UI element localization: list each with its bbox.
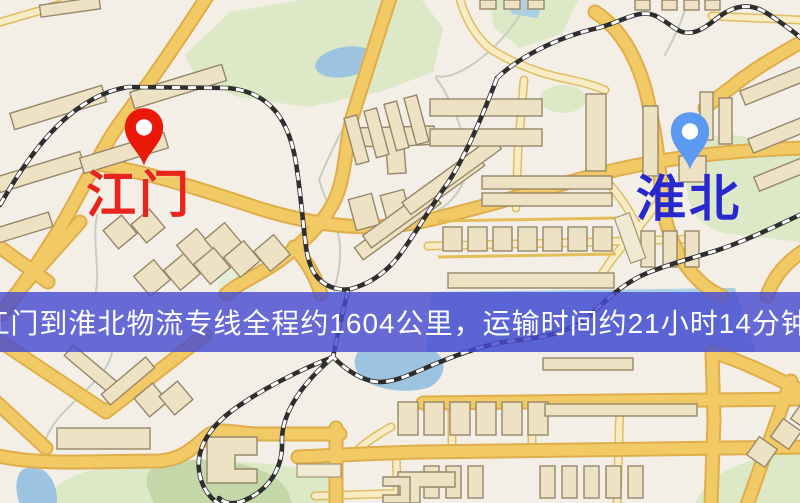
map-pin-icon [121, 106, 167, 168]
route-info-text: 江门到淮北物流专线全程约1604公里，运输时间约21小时14分钟. [0, 302, 800, 342]
destination-marker[interactable] [667, 110, 713, 172]
map-pin-icon [667, 110, 713, 172]
map-canvas[interactable] [0, 0, 800, 503]
map-view[interactable]: 江门 淮北 江门到淮北物流专线全程约1604公里，运输时间约21小时14分钟. [0, 0, 800, 503]
origin-city-label: 江门 [86, 170, 192, 220]
destination-city-label: 淮北 [636, 174, 742, 224]
origin-marker[interactable] [121, 106, 167, 168]
route-info-banner: 江门到淮北物流专线全程约1604公里，运输时间约21小时14分钟. [0, 292, 800, 352]
